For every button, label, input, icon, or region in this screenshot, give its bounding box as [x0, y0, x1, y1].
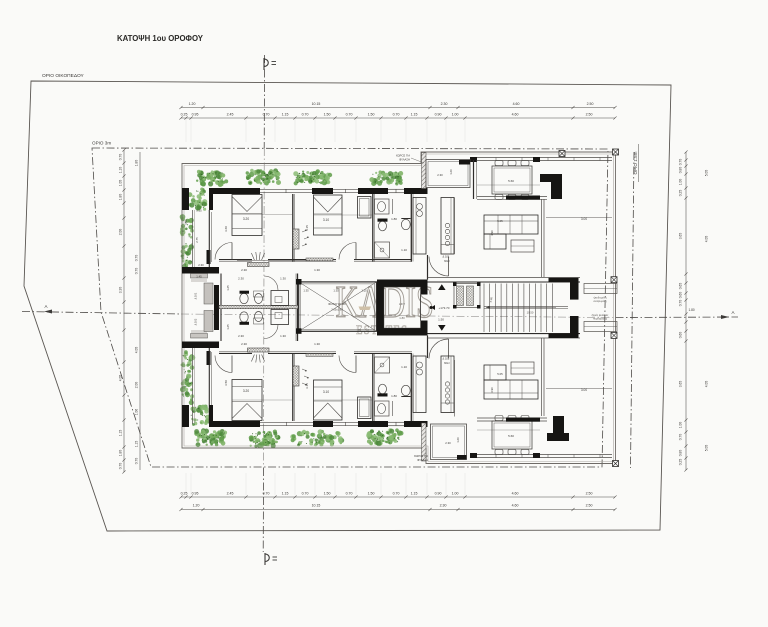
- svg-text:2.00: 2.00: [119, 229, 123, 236]
- svg-text:0.90: 0.90: [435, 113, 442, 117]
- svg-text:0.80: 0.80: [679, 450, 683, 457]
- svg-text:ΧΩΡΟΣ ΓΙΑ: ΧΩΡΟΣ ΓΙΑ: [414, 454, 428, 458]
- svg-text:3.15: 3.15: [305, 225, 309, 231]
- svg-text:0.95: 0.95: [192, 492, 199, 496]
- svg-text:ΦΥΛΑΞΗ: ΦΥΛΑΞΗ: [417, 458, 428, 462]
- svg-text:0.70: 0.70: [135, 255, 139, 262]
- svg-text:0.70: 0.70: [119, 463, 123, 470]
- svg-text:5.05: 5.05: [705, 170, 709, 177]
- svg-text:LIFT: LIFT: [399, 302, 405, 306]
- svg-text:ΦΩΤΑΓΩΓΟΣ: ΦΩΤΑΓΩΓΟΣ: [328, 302, 346, 306]
- svg-text:3.15: 3.15: [305, 383, 309, 389]
- svg-text:1.80: 1.80: [391, 217, 397, 221]
- svg-text:4.60: 4.60: [513, 102, 520, 106]
- svg-text:1.30: 1.30: [280, 334, 286, 338]
- svg-text:1.10: 1.10: [401, 248, 407, 252]
- svg-text:0.70: 0.70: [119, 154, 123, 161]
- svg-text:0.25: 0.25: [679, 459, 683, 466]
- svg-text:4.05: 4.05: [119, 375, 123, 382]
- svg-text:2.50: 2.50: [586, 504, 593, 508]
- svg-text:3.65: 3.65: [679, 381, 683, 388]
- svg-text:3.60: 3.60: [224, 226, 228, 232]
- svg-text:1.80: 1.80: [689, 308, 695, 312]
- svg-text:3.30: 3.30: [119, 287, 123, 294]
- svg-text:ΚΑΤΟΨΗ 1ου ΟΡΟΦΟΥ: ΚΑΤΟΨΗ 1ου ΟΡΟΦΟΥ: [117, 34, 204, 43]
- svg-text:4.60: 4.60: [512, 492, 519, 496]
- svg-text:2.45: 2.45: [227, 492, 234, 496]
- svg-text:Α: Α: [44, 304, 47, 309]
- svg-text:1.80: 1.80: [399, 316, 405, 320]
- svg-text:10.50: 10.50: [527, 311, 534, 315]
- svg-text:0.70: 0.70: [263, 492, 270, 496]
- svg-text:2.30: 2.30: [445, 441, 451, 445]
- svg-text:5.05: 5.05: [497, 372, 503, 376]
- svg-text:1.60: 1.60: [456, 437, 460, 443]
- svg-text:2.30: 2.30: [238, 277, 244, 281]
- svg-text:1.50: 1.50: [324, 492, 331, 496]
- svg-text:4.05: 4.05: [705, 381, 709, 388]
- svg-text:ΟΡΙΟ 3m: ΟΡΙΟ 3m: [92, 141, 111, 146]
- svg-text:1.00: 1.00: [679, 179, 683, 186]
- svg-text:1.15: 1.15: [361, 289, 367, 293]
- svg-text:+173.70: +173.70: [439, 306, 450, 310]
- svg-text:4.05: 4.05: [135, 347, 139, 354]
- svg-text:0.70: 0.70: [679, 434, 683, 441]
- svg-text:0.25: 0.25: [679, 190, 683, 197]
- svg-text:1.30: 1.30: [314, 342, 320, 346]
- svg-text:0.70: 0.70: [679, 300, 683, 307]
- svg-text:1.30: 1.30: [280, 277, 286, 281]
- svg-text:2.50: 2.50: [586, 113, 593, 117]
- svg-text:5.05: 5.05: [705, 445, 709, 452]
- svg-text:1.50: 1.50: [368, 113, 375, 117]
- svg-text:1.65: 1.65: [226, 285, 230, 291]
- svg-text:0.80: 0.80: [679, 167, 683, 174]
- svg-text:1.80: 1.80: [119, 194, 123, 201]
- svg-text:3.50: 3.50: [224, 380, 228, 386]
- svg-text:0.70: 0.70: [135, 268, 139, 275]
- svg-text:2.75: 2.75: [195, 237, 199, 243]
- svg-text:4.05: 4.05: [705, 236, 709, 243]
- svg-text:1.20: 1.20: [193, 504, 200, 508]
- svg-text:0.70: 0.70: [302, 492, 309, 496]
- svg-text:0.90: 0.90: [435, 492, 442, 496]
- svg-text:1.10: 1.10: [401, 365, 407, 369]
- svg-text:0.70: 0.70: [346, 113, 353, 117]
- svg-text:10.15: 10.15: [312, 102, 321, 106]
- svg-text:0.70: 0.70: [346, 492, 353, 496]
- svg-text:Α: Α: [731, 310, 734, 315]
- svg-text:1.30: 1.30: [314, 268, 320, 272]
- svg-text:ΟΡΙΟ ΟΙΚΟΠΕΔΟΥ: ΟΡΙΟ ΟΙΚΟΠΕΔΟΥ: [42, 73, 85, 79]
- svg-text:10.15: 10.15: [312, 504, 321, 508]
- svg-text:1.45: 1.45: [196, 274, 202, 278]
- svg-text:1.06: 1.06: [135, 409, 139, 416]
- svg-text:ανυψωμένη: ανυψωμένη: [594, 300, 608, 303]
- svg-text:3.65: 3.65: [679, 233, 683, 240]
- svg-text:2.00: 2.00: [135, 382, 139, 389]
- svg-text:3.90: 3.90: [490, 230, 494, 236]
- svg-text:2.30: 2.30: [238, 334, 244, 338]
- svg-text:πυρόσβεσης: πυρόσβεσης: [593, 318, 608, 321]
- svg-text:2.50: 2.50: [587, 102, 594, 106]
- svg-text:0.70: 0.70: [679, 159, 683, 166]
- svg-text:2.30: 2.30: [198, 263, 204, 267]
- svg-text:0.60: 0.60: [184, 219, 188, 225]
- svg-text:66m²: 66m²: [444, 260, 450, 263]
- svg-text:1.05: 1.05: [119, 180, 123, 187]
- svg-text:2.30: 2.30: [437, 173, 443, 177]
- svg-text:2.30: 2.30: [440, 504, 447, 508]
- svg-text:0.25: 0.25: [181, 113, 188, 117]
- svg-text:1.65: 1.65: [226, 324, 230, 330]
- svg-text:1.15: 1.15: [411, 113, 418, 117]
- svg-text:1.50: 1.50: [324, 113, 331, 117]
- svg-text:1.15: 1.15: [282, 492, 289, 496]
- svg-text:4.60: 4.60: [512, 113, 519, 117]
- svg-text:1.10: 1.10: [119, 167, 123, 174]
- svg-text:0.60: 0.60: [679, 332, 683, 339]
- svg-text:1.60: 1.60: [449, 169, 453, 175]
- svg-text:1.15: 1.15: [282, 113, 289, 117]
- svg-text:2.65x1.80: 2.65x1.80: [331, 308, 343, 312]
- svg-text:1.00: 1.00: [452, 492, 459, 496]
- svg-text:1.80: 1.80: [135, 160, 139, 167]
- svg-text:0.70: 0.70: [135, 458, 139, 465]
- svg-text:3.20: 3.20: [243, 217, 249, 221]
- svg-text:ΦΥΛΑΞΗ: ΦΥΛΑΞΗ: [399, 158, 410, 162]
- svg-text:0.70: 0.70: [302, 113, 309, 117]
- svg-text:1.15: 1.15: [119, 430, 123, 437]
- svg-text:ΧΩΡΟΣ ΓΙΑ: ΧΩΡΟΣ ΓΙΑ: [396, 154, 410, 158]
- svg-text:Δ 101: Δ 101: [443, 255, 450, 259]
- svg-text:0.70: 0.70: [393, 113, 400, 117]
- svg-text:1.00: 1.00: [452, 113, 459, 117]
- svg-text:5.60: 5.60: [508, 434, 514, 438]
- svg-text:2.30: 2.30: [241, 342, 247, 346]
- svg-text:1.35: 1.35: [303, 289, 309, 293]
- svg-text:2.30: 2.30: [441, 102, 448, 106]
- svg-text:66m²: 66m²: [444, 362, 450, 365]
- svg-text:2.30: 2.30: [241, 268, 247, 272]
- svg-text:0.25: 0.25: [181, 492, 188, 496]
- svg-text:3.10: 3.10: [323, 390, 329, 394]
- svg-text:Δ 102: Δ 102: [443, 357, 450, 361]
- svg-text:1.35: 1.35: [333, 289, 339, 293]
- svg-text:0.70: 0.70: [263, 113, 270, 117]
- svg-text:1.80: 1.80: [391, 394, 397, 398]
- svg-text:Δ 102: Δ 102: [194, 318, 198, 325]
- svg-text:0.95: 0.95: [192, 113, 199, 117]
- svg-text:3.90: 3.90: [490, 387, 494, 393]
- svg-text:3.20: 3.20: [243, 389, 249, 393]
- svg-text:1.50: 1.50: [438, 318, 444, 322]
- svg-text:0.60: 0.60: [679, 292, 683, 299]
- svg-text:0.65: 0.65: [679, 283, 683, 290]
- svg-text:0.70: 0.70: [393, 492, 400, 496]
- svg-text:1.50: 1.50: [368, 492, 375, 496]
- svg-text:ΟΡΙΟ 1.5m: ΟΡΙΟ 1.5m: [633, 151, 638, 174]
- svg-text:5.60: 5.60: [508, 179, 514, 183]
- svg-text:1.15: 1.15: [411, 492, 418, 496]
- svg-text:2.50: 2.50: [586, 492, 593, 496]
- svg-text:0.55: 0.55: [196, 209, 202, 213]
- svg-text:1.80: 1.80: [119, 450, 123, 457]
- svg-text:1.20: 1.20: [189, 102, 196, 106]
- svg-text:Δ 101: Δ 101: [194, 292, 198, 299]
- svg-text:2.45: 2.45: [227, 113, 234, 117]
- svg-text:4.60: 4.60: [512, 504, 519, 508]
- svg-text:5.05: 5.05: [497, 219, 503, 223]
- svg-text:1.15: 1.15: [135, 441, 139, 448]
- svg-text:1.00: 1.00: [679, 422, 683, 429]
- svg-text:3.10: 3.10: [323, 218, 329, 222]
